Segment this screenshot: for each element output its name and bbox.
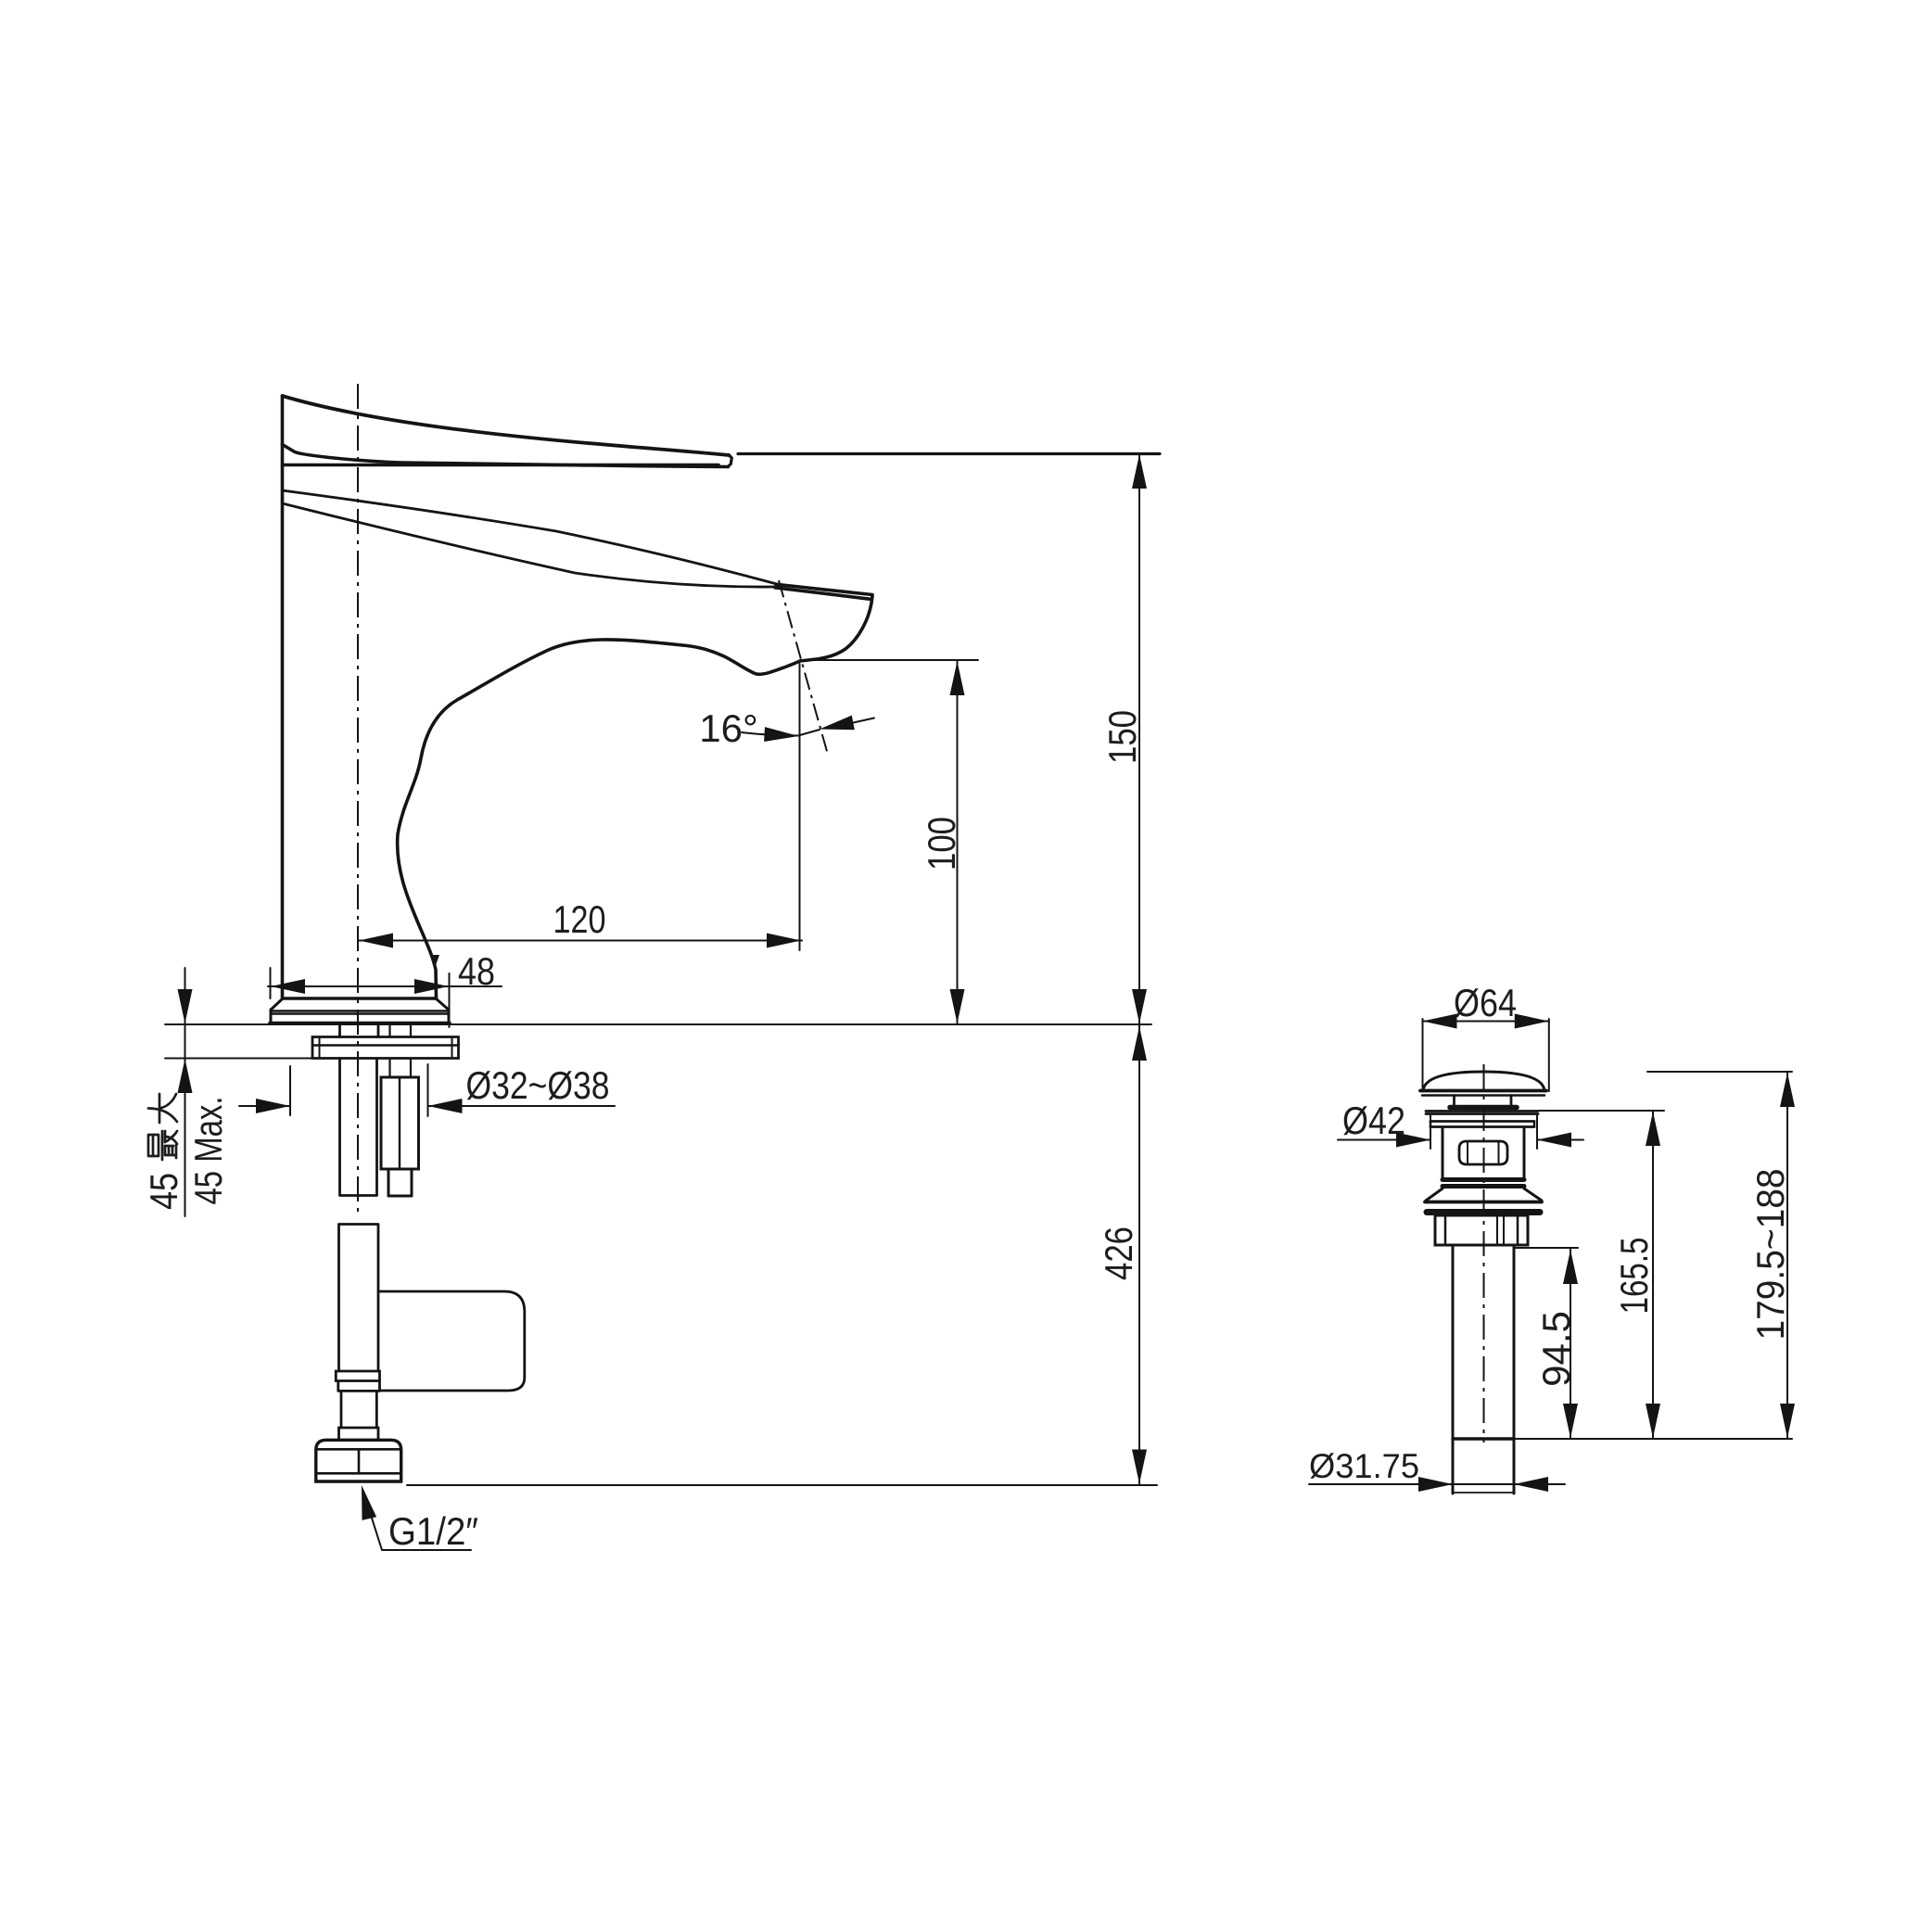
svg-text:45 Max.: 45 Max. bbox=[186, 1097, 230, 1205]
svg-text:150: 150 bbox=[1100, 710, 1144, 764]
svg-text:Ø32~Ø38: Ø32~Ø38 bbox=[466, 1063, 610, 1107]
svg-text:120: 120 bbox=[553, 897, 606, 941]
svg-text:Ø64: Ø64 bbox=[1454, 981, 1517, 1024]
svg-text:165.5: 165.5 bbox=[1612, 1238, 1656, 1315]
svg-text:48: 48 bbox=[458, 949, 495, 993]
svg-text:179.5~188: 179.5~188 bbox=[1748, 1169, 1792, 1341]
svg-text:Ø42: Ø42 bbox=[1342, 1099, 1405, 1142]
svg-text:426: 426 bbox=[1097, 1227, 1140, 1280]
svg-text:100: 100 bbox=[920, 817, 963, 871]
svg-text:45: 45 bbox=[142, 1173, 185, 1210]
svg-text:16°: 16° bbox=[699, 706, 758, 750]
svg-text:Ø31.75: Ø31.75 bbox=[1309, 1447, 1419, 1485]
svg-text:94.5: 94.5 bbox=[1534, 1311, 1578, 1387]
svg-text:G1/2″: G1/2″ bbox=[388, 1509, 478, 1553]
